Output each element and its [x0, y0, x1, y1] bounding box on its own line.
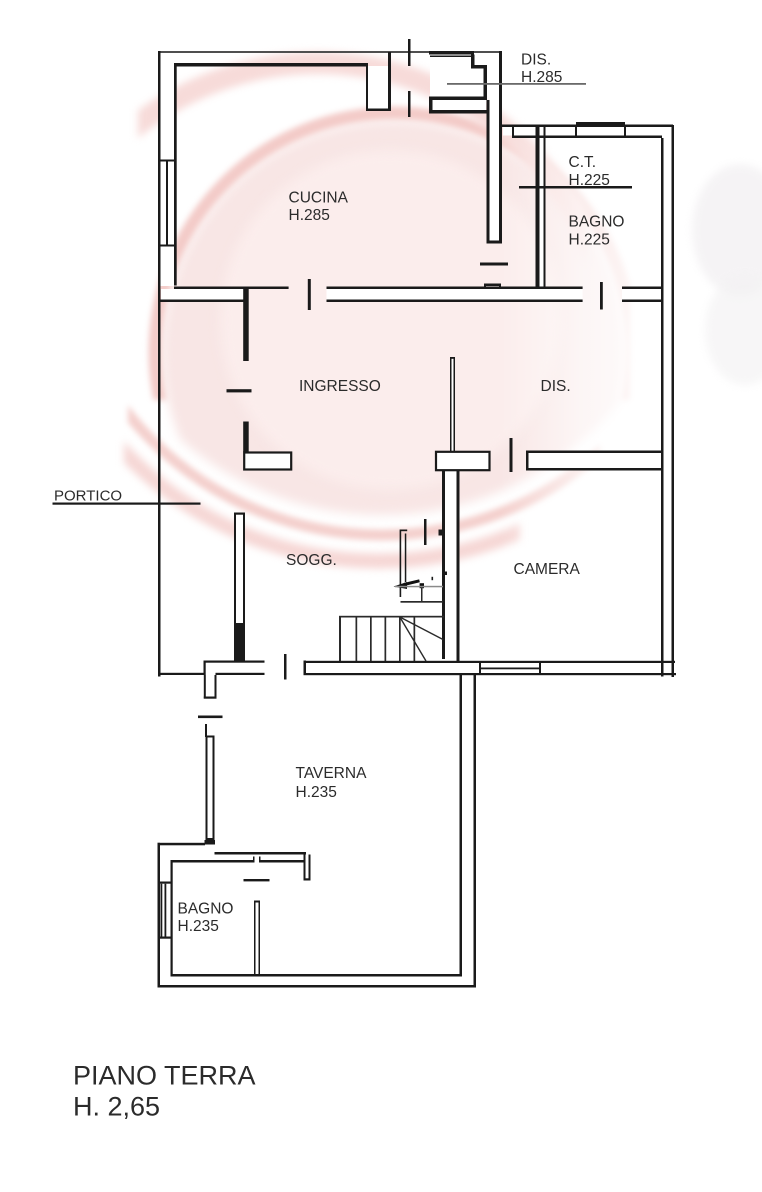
- svg-text:CAMERA: CAMERA: [514, 561, 581, 578]
- svg-text:H. 2,65: H. 2,65: [73, 1092, 160, 1122]
- svg-text:H.235: H.235: [296, 784, 337, 801]
- svg-text:PORTICO: PORTICO: [54, 488, 122, 505]
- svg-text:H.235: H.235: [178, 918, 219, 935]
- svg-text:INGRESSO: INGRESSO: [299, 378, 381, 395]
- svg-text:SOGG.: SOGG.: [286, 552, 337, 569]
- svg-text:DIS.: DIS.: [541, 378, 571, 395]
- svg-text:H.225: H.225: [569, 232, 610, 249]
- svg-text:DIS.: DIS.: [521, 52, 551, 69]
- svg-text:BAGNO: BAGNO: [569, 214, 625, 231]
- svg-text:BAGNO: BAGNO: [178, 901, 234, 918]
- svg-text:H.285: H.285: [289, 207, 330, 224]
- svg-text:H.225: H.225: [569, 172, 610, 189]
- svg-text:TAVERNA: TAVERNA: [296, 765, 368, 782]
- svg-text:CUCINA: CUCINA: [289, 190, 349, 207]
- svg-text:PIANO TERRA: PIANO TERRA: [73, 1061, 256, 1091]
- svg-text:C.T.: C.T.: [569, 154, 597, 171]
